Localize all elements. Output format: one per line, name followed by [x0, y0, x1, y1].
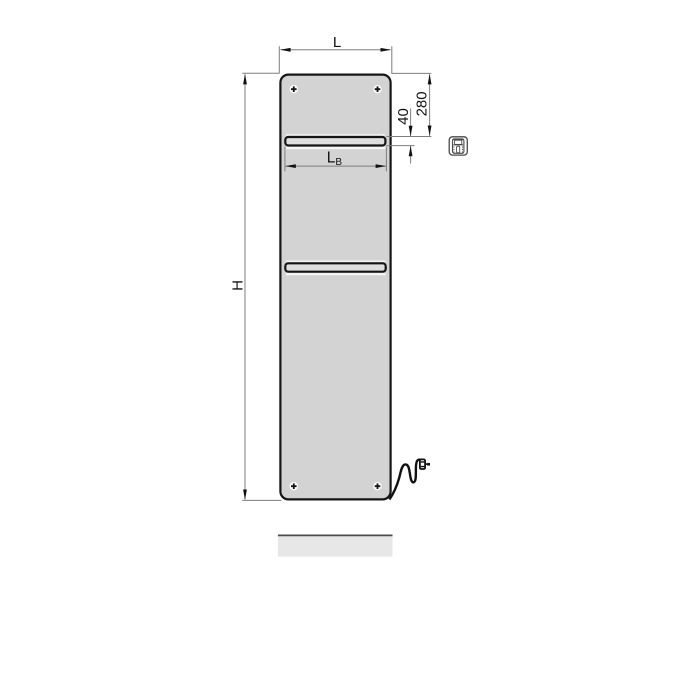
svg-text:280: 280 [414, 91, 431, 116]
svg-text:L: L [333, 34, 341, 51]
svg-text:40: 40 [395, 108, 412, 125]
svg-text:H: H [229, 280, 246, 291]
